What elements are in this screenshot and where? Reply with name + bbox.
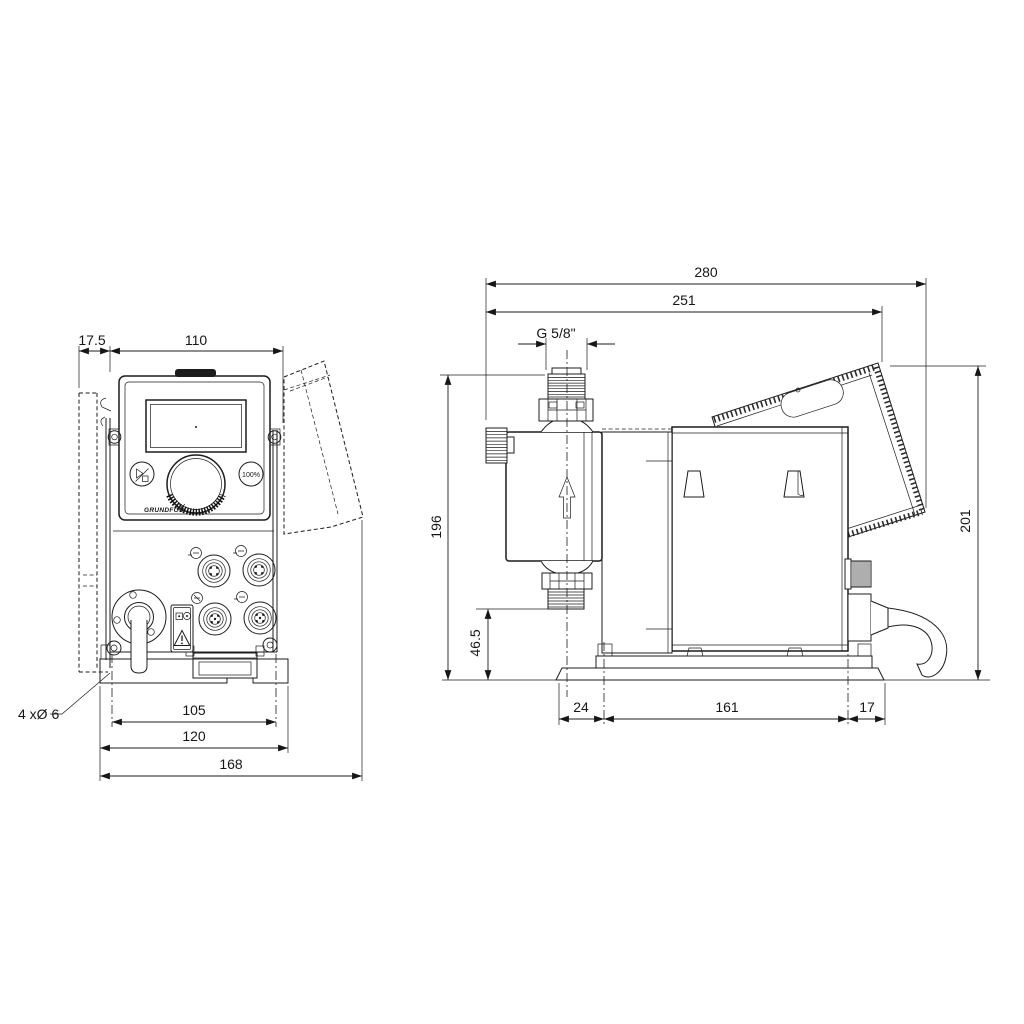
- m12-connectors: [188, 546, 276, 636]
- m12-connector[interactable]: [243, 554, 275, 586]
- dim-label-46-5: 46.5: [467, 629, 483, 656]
- dim-label-168: 168: [219, 756, 243, 772]
- dosing-head: [486, 350, 602, 697]
- motor-housing-side: [672, 427, 848, 651]
- dim-label-280: 280: [694, 264, 718, 280]
- brand-logo-text: GRUNDFOS: [144, 507, 184, 514]
- dim-label-24: 24: [573, 699, 589, 715]
- warning-label-plate: [171, 605, 193, 652]
- m12-connector[interactable]: [244, 602, 276, 634]
- top-connection: [539, 368, 593, 432]
- dim-label-161: 161: [715, 699, 739, 715]
- side-view: 280 251 G 5/8" 196 46.5 201 24 161: [428, 264, 990, 726]
- dim-label-201: 201: [957, 509, 973, 533]
- max-capacity-label: 100%: [242, 472, 260, 479]
- mounting-holes-callout: 4 xØ 6: [18, 673, 110, 722]
- side-dimensions-base: 24 161 17: [559, 683, 885, 725]
- mains-cable: [131, 620, 147, 673]
- control-cube-front-hidden: [284, 361, 363, 534]
- drawing-page: 100% GRUNDFOS: [0, 0, 1024, 1024]
- din-rail-clip: [186, 646, 264, 678]
- control-panel: 100% GRUNDFOS: [108, 369, 281, 520]
- dim-label-110: 110: [185, 332, 208, 348]
- dim-label-17: 17: [859, 699, 875, 715]
- drive-flange-section: [602, 429, 672, 653]
- drawing-canvas: 100% GRUNDFOS: [0, 0, 1024, 1024]
- dim-label-251: 251: [672, 292, 696, 308]
- front-view: 100% GRUNDFOS: [18, 332, 363, 781]
- m12-connector[interactable]: [199, 603, 231, 635]
- panel-top-tab: [175, 369, 216, 377]
- dim-label-105: 105: [182, 702, 206, 718]
- dim-label-17-5: 17.5: [78, 332, 105, 348]
- cable-glands: [845, 559, 947, 677]
- dim-label-196: 196: [428, 515, 444, 539]
- dim-label-120: 120: [182, 728, 206, 744]
- panel-frame: [119, 376, 270, 520]
- dim-label-thread: G 5/8": [536, 325, 575, 341]
- power-cable: [888, 608, 947, 677]
- m12-connector[interactable]: [198, 555, 230, 587]
